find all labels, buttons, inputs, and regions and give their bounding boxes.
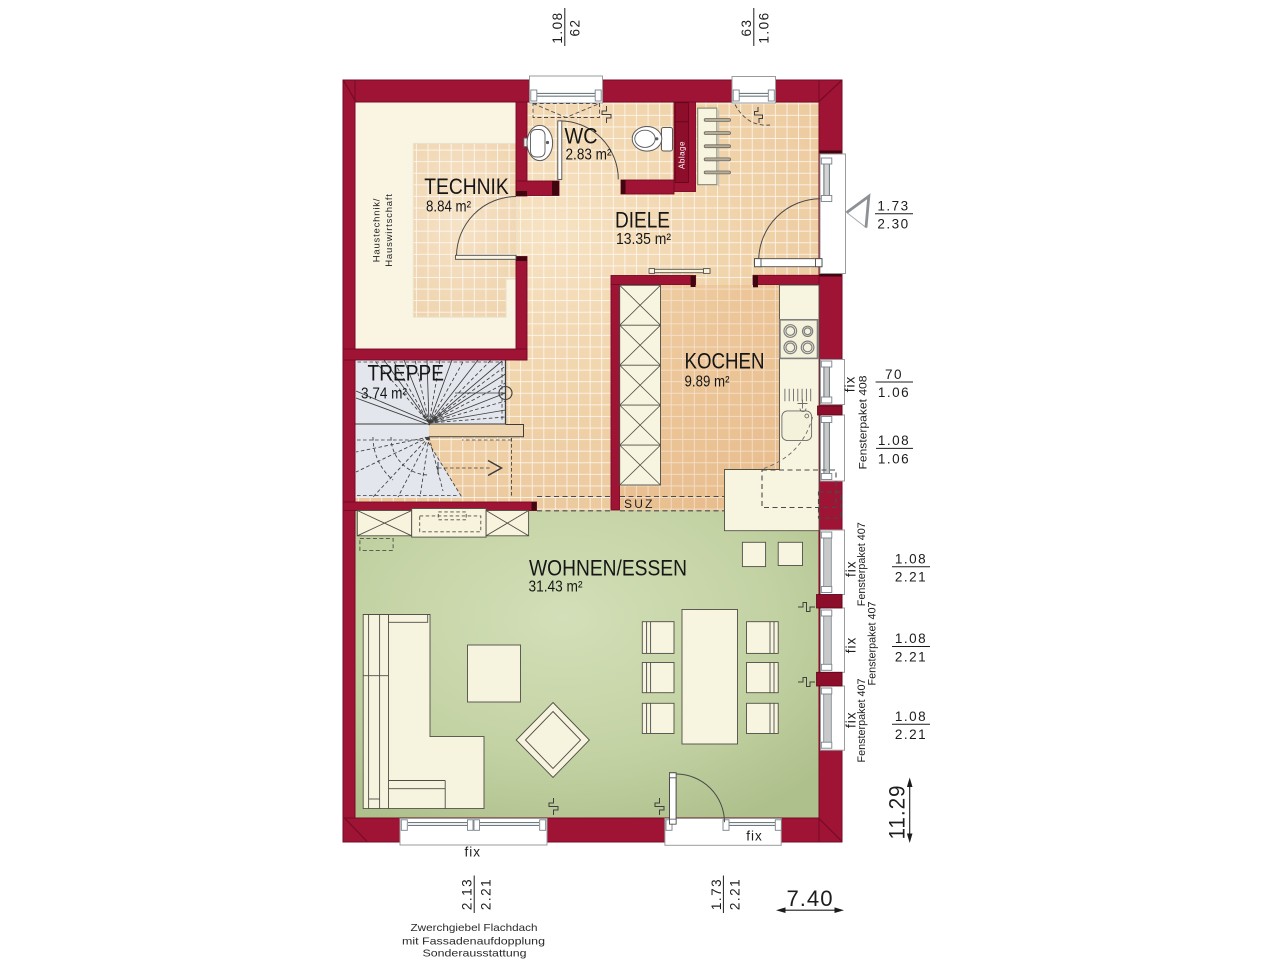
- svg-text:7.40: 7.40: [787, 886, 834, 911]
- svg-text:fix: fix: [844, 637, 859, 654]
- svg-text:1.06: 1.06: [878, 452, 910, 467]
- svg-text:3.74 m²: 3.74 m²: [361, 386, 407, 403]
- svg-text:WOHNEN/ESSEN: WOHNEN/ESSEN: [529, 556, 687, 581]
- svg-text:1.08: 1.08: [550, 11, 565, 43]
- svg-text:2.21: 2.21: [895, 727, 927, 742]
- svg-text:WC: WC: [565, 124, 598, 149]
- svg-text:fix: fix: [842, 376, 857, 393]
- svg-text:Sonderausstattung: Sonderausstattung: [423, 948, 527, 960]
- svg-text:70: 70: [885, 367, 903, 382]
- svg-text:1.73: 1.73: [877, 198, 909, 213]
- svg-text:Fensterpaket 408: Fensterpaket 408: [857, 376, 869, 470]
- svg-text:Fensterpaket 407: Fensterpaket 407: [856, 679, 868, 763]
- svg-text:2.83 m²: 2.83 m²: [566, 147, 612, 164]
- svg-text:62: 62: [568, 18, 583, 36]
- svg-text:31.43 m²: 31.43 m²: [529, 579, 583, 596]
- svg-text:1.08: 1.08: [895, 631, 927, 646]
- svg-text:63: 63: [739, 18, 754, 36]
- svg-text:SUZ: SUZ: [624, 497, 655, 511]
- svg-text:1.73: 1.73: [709, 878, 724, 910]
- svg-text:1.08: 1.08: [895, 709, 927, 724]
- svg-text:DIELE: DIELE: [615, 208, 670, 233]
- svg-text:Fensterpaket 407: Fensterpaket 407: [867, 602, 879, 686]
- svg-text:13.35 m²: 13.35 m²: [616, 231, 671, 248]
- svg-text:1.06: 1.06: [757, 11, 772, 43]
- svg-text:9.89 m²: 9.89 m²: [685, 374, 730, 391]
- svg-text:TREPPE: TREPPE: [368, 361, 445, 386]
- svg-text:fix: fix: [465, 845, 482, 860]
- svg-text:Hauswirtschaft: Hauswirtschaft: [384, 193, 395, 267]
- svg-text:2.21: 2.21: [728, 878, 743, 910]
- svg-text:1.06: 1.06: [878, 385, 910, 400]
- svg-text:2.21: 2.21: [895, 649, 927, 664]
- svg-text:Fensterpaket 407: Fensterpaket 407: [856, 522, 868, 606]
- svg-text:2.13: 2.13: [460, 878, 475, 910]
- svg-text:Ablage: Ablage: [677, 141, 686, 169]
- svg-text:fix: fix: [746, 829, 763, 844]
- svg-text:1.08: 1.08: [895, 551, 927, 566]
- svg-text:11.29: 11.29: [885, 785, 910, 840]
- svg-text:Haustechnik/: Haustechnik/: [372, 198, 383, 263]
- svg-text:TECHNIK: TECHNIK: [424, 174, 509, 199]
- svg-text:2.30: 2.30: [877, 217, 909, 232]
- svg-text:Zwerchgiebel Flachdach: Zwerchgiebel Flachdach: [411, 922, 538, 934]
- svg-text:2.21: 2.21: [479, 878, 494, 910]
- svg-text:1.08: 1.08: [878, 433, 910, 448]
- svg-text:mit Fassadenaufdopplung: mit Fassadenaufdopplung: [402, 936, 545, 948]
- svg-text:2.21: 2.21: [895, 570, 927, 585]
- svg-text:8.84 m²: 8.84 m²: [426, 199, 471, 216]
- svg-text:KOCHEN: KOCHEN: [685, 349, 765, 374]
